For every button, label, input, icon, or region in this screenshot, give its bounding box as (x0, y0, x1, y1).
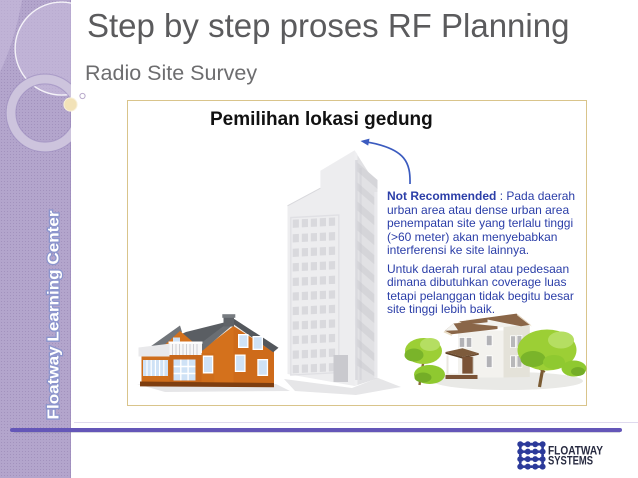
svg-text:SYSTEMS: SYSTEMS (548, 453, 593, 467)
